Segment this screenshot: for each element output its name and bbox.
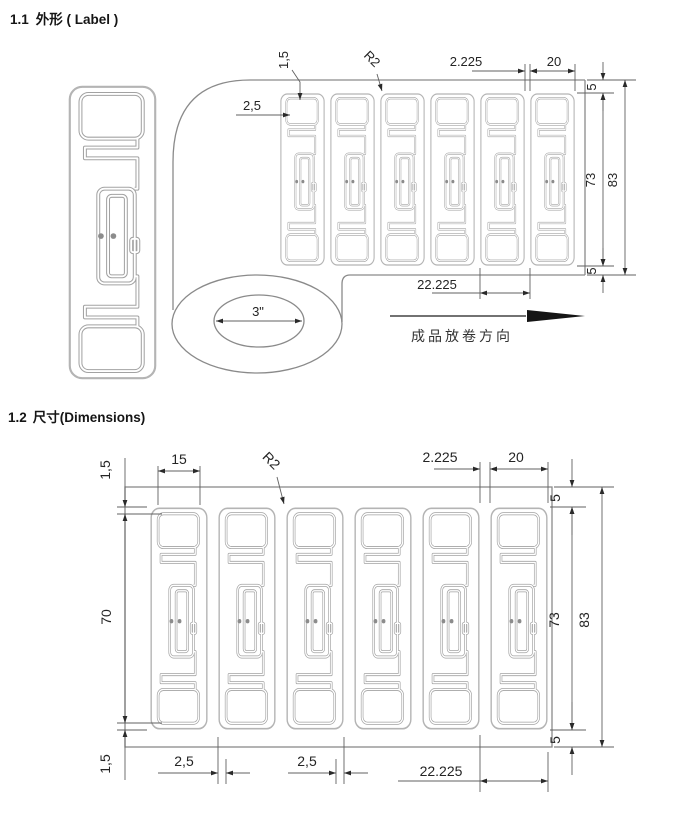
dim-side-margin-b-value: 2,5 [297,753,317,769]
core-diameter-value: 3" [252,304,264,319]
rfid-label [151,508,207,728]
rfid-label [281,94,324,265]
dim-corner-radius: R2 [260,448,284,504]
dim-right-chain: 5 73 5 83 [546,459,614,775]
section-1-title: 外形 ( Label ) [36,11,119,27]
rfid-label [381,94,424,265]
section-2-heading: 1.2尺寸(Dimensions) [8,409,145,425]
dim-label-height-value: 73 [583,173,598,187]
section-2-title: 尺寸(Dimensions) [33,409,146,425]
dim-label-width-value: 20 [547,54,561,69]
dim-edge-bottom-value: 5 [584,267,599,274]
dim-web-width-value: 83 [605,173,620,187]
dim-corner-radius-value: R2 [361,48,383,70]
dim-bottom-margin-value: 1,5 [97,754,113,774]
dim-side-margin-value: 2,5 [243,98,261,113]
rfid-label [481,94,524,265]
section-1-heading: 1.1外形 ( Label ) [10,11,118,27]
dim-side-margin-a-value: 2,5 [174,753,194,769]
unwind-direction: 成品放卷方向 [390,310,585,344]
unwind-arrow-head [527,310,585,322]
dim-label-width: 20 [530,54,575,91]
datasheet-page: 1.1外形 ( Label ) 3" 1,5 2,5 R2 [0,0,700,820]
rfid-label-single [70,87,155,378]
rfid-label [423,508,479,728]
dim-top-margin-value: 1,5 [276,51,291,69]
dim-gap-value: 2.225 [450,54,483,69]
dim-pitch: 22.225 [417,268,530,299]
dim-bottom-margin: 1,5 [97,730,147,780]
rfid-label [219,508,275,728]
rfid-label [491,508,547,728]
dim-top-margin: 1,5 [276,51,300,100]
rfid-label [431,94,474,265]
dim-label-width-value: 20 [508,449,524,465]
dim-corner-radius: R2 [361,48,383,91]
dim-block-width-value: 15 [171,451,187,467]
dim-label-height-value: 73 [546,612,562,628]
figure-roll: 3" 1,5 2,5 R2 2.225 [70,48,636,379]
dim-antenna-height-value: 70 [98,609,114,625]
rfid-label [531,94,574,265]
dim-pitch-value: 22.225 [420,763,463,779]
rfid-label [331,94,374,265]
dim-edge-top-value: 5 [584,83,599,90]
dim-gap: 2.225 [422,449,508,503]
dim-side-margin-b: 2,5 [288,737,368,784]
section-2-number: 1.2 [8,410,27,425]
dim-right-chain: 5 73 5 83 [577,62,636,293]
dim-side-margin-a: 2,5 [158,737,250,784]
unwind-direction-label: 成品放卷方向 [411,328,513,344]
dim-pitch: 22.225 [398,735,548,792]
dim-web-width-value: 83 [576,612,592,628]
figure-dimensions: 15 1,5 70 1,5 R2 [97,448,614,792]
dim-pitch-value: 22.225 [417,277,457,292]
dim-edge-top-value: 5 [547,494,563,502]
rfid-label [287,508,343,728]
dim-top-margin: 1,5 [97,458,162,514]
roll-outer [172,275,342,373]
dim-gap-value: 2.225 [422,449,457,465]
rfid-label [355,508,411,728]
dim-gap: 2.225 [450,54,552,91]
dim-top-margin-value: 1,5 [97,460,113,480]
section-1-number: 1.1 [10,12,29,27]
dim-edge-bottom-value: 5 [547,736,563,744]
dim-block-width: 15 [158,451,200,505]
dim-corner-radius-value: R2 [260,448,284,472]
dim-label-width: 20 [490,449,548,503]
